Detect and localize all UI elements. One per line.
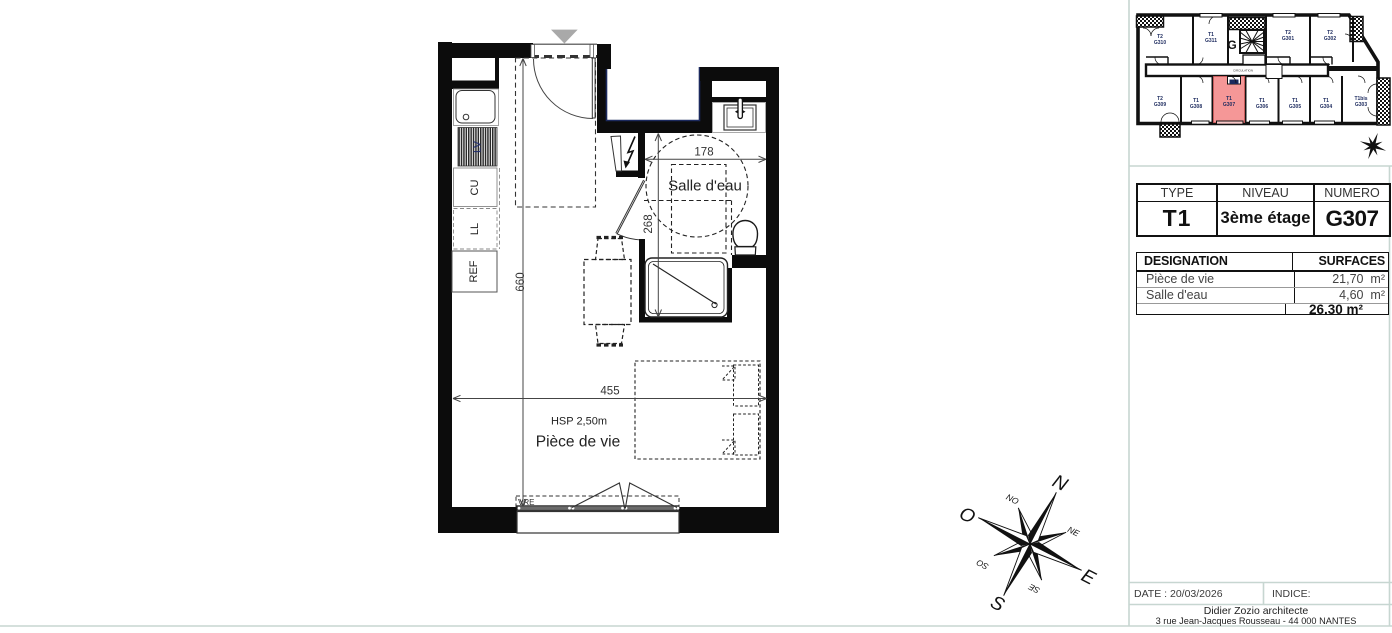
svg-text:G302: G302 (1324, 36, 1336, 42)
svg-text:Pièce de vie: Pièce de vie (536, 434, 620, 451)
svg-text:CIRCULATION: CIRCULATION (1233, 69, 1253, 73)
svg-text:REF: REF (468, 260, 480, 282)
svg-text:G303: G303 (1355, 102, 1367, 108)
svg-text:G308: G308 (1190, 104, 1202, 110)
svg-text:G: G (1227, 38, 1236, 52)
svg-text:660: 660 (515, 272, 527, 291)
svg-text:G306: G306 (1256, 104, 1268, 110)
svg-text:G311: G311 (1205, 38, 1217, 44)
svg-text:SE: SE (1027, 582, 1042, 596)
svg-text:N: N (1049, 471, 1071, 496)
svg-text:LV: LV (471, 141, 483, 153)
svg-text:SO: SO (974, 557, 990, 572)
svg-text:G304: G304 (1320, 104, 1332, 110)
svg-text:CU: CU (469, 180, 481, 196)
svg-text:G301: G301 (1282, 36, 1294, 42)
svg-text:S: S (987, 592, 1008, 617)
svg-text:O: O (956, 503, 979, 529)
svg-text:NE: NE (1066, 524, 1081, 538)
svg-text:E: E (1078, 565, 1099, 590)
svg-text:178: 178 (694, 147, 713, 159)
svg-text:268: 268 (643, 214, 655, 233)
svg-text:G310: G310 (1154, 40, 1166, 46)
svg-text:G309: G309 (1154, 102, 1166, 108)
svg-text:NO: NO (1005, 492, 1021, 507)
svg-text:HSP 2,50m: HSP 2,50m (551, 416, 607, 428)
svg-text:Salle d'eau: Salle d'eau (668, 178, 742, 195)
svg-text:455: 455 (600, 386, 619, 398)
svg-text:G305: G305 (1289, 104, 1301, 110)
svg-text:G307: G307 (1223, 102, 1235, 108)
svg-text:LL: LL (469, 223, 481, 235)
